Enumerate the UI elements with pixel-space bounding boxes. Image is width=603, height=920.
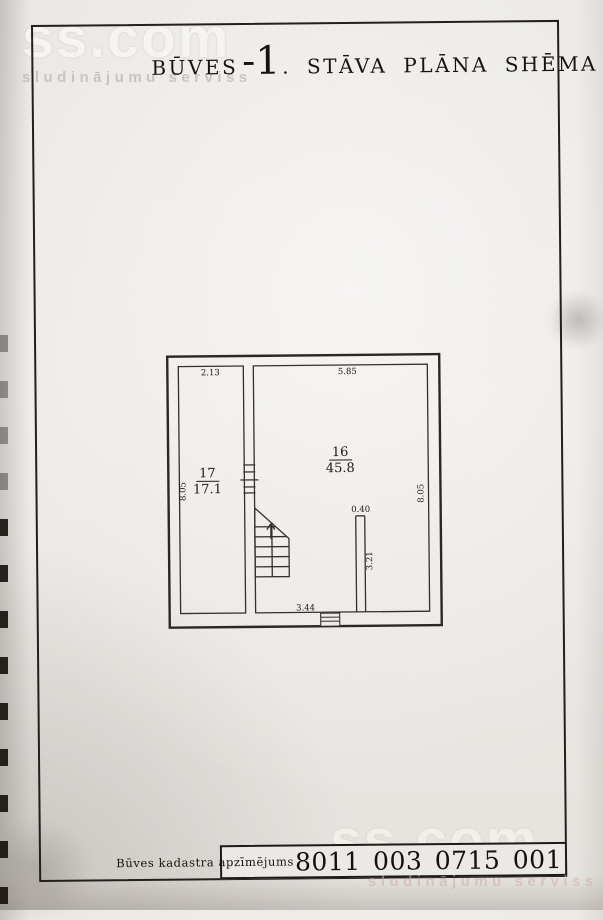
dim-room16-width: 5.85 [338,367,357,377]
room-16-area: 45.8 [326,461,355,476]
dim-room17-width: 2.13 [201,368,220,378]
room-17-label: 17 17.1 [193,466,222,497]
entrance-steps [321,613,340,626]
spiral-binding-holes [0,519,8,910]
cadastre-number: 8011 003 0715 001 [295,844,562,876]
cadastre-box: Būves kadastra apzīmējums 8011 003 0715 … [220,842,567,879]
cadastre-label: Būves kadastra apzīmējums [116,855,294,871]
room-16-outline [253,364,429,613]
dim-niche-height: 3.21 [365,551,375,570]
scanned-page: ss.com sludinājumu serviss ss.com sludin… [0,0,603,910]
page-frame: BŪVES -1 . STĀVA PLĀNA SHĒMA [31,20,567,882]
floor-plan-drawing: 2.13 5.85 8.05 8.05 0.40 3.21 3.44 17 17… [33,22,565,880]
room-17-area: 17.1 [193,482,222,497]
staircase [255,508,290,577]
dim-niche-width: 0.40 [351,505,370,515]
wall-stub [356,516,366,612]
dim-room17-height: 8.05 [178,482,188,501]
spiral-binding-holes [0,335,8,519]
dim-room16-height: 8.05 [416,484,426,503]
room-16-label: 16 45.8 [326,445,355,476]
dim-entry-span: 3.44 [296,603,315,613]
room-17-number: 17 [199,466,216,481]
interior-wall-marks [240,465,258,493]
room-16-number: 16 [332,445,349,460]
